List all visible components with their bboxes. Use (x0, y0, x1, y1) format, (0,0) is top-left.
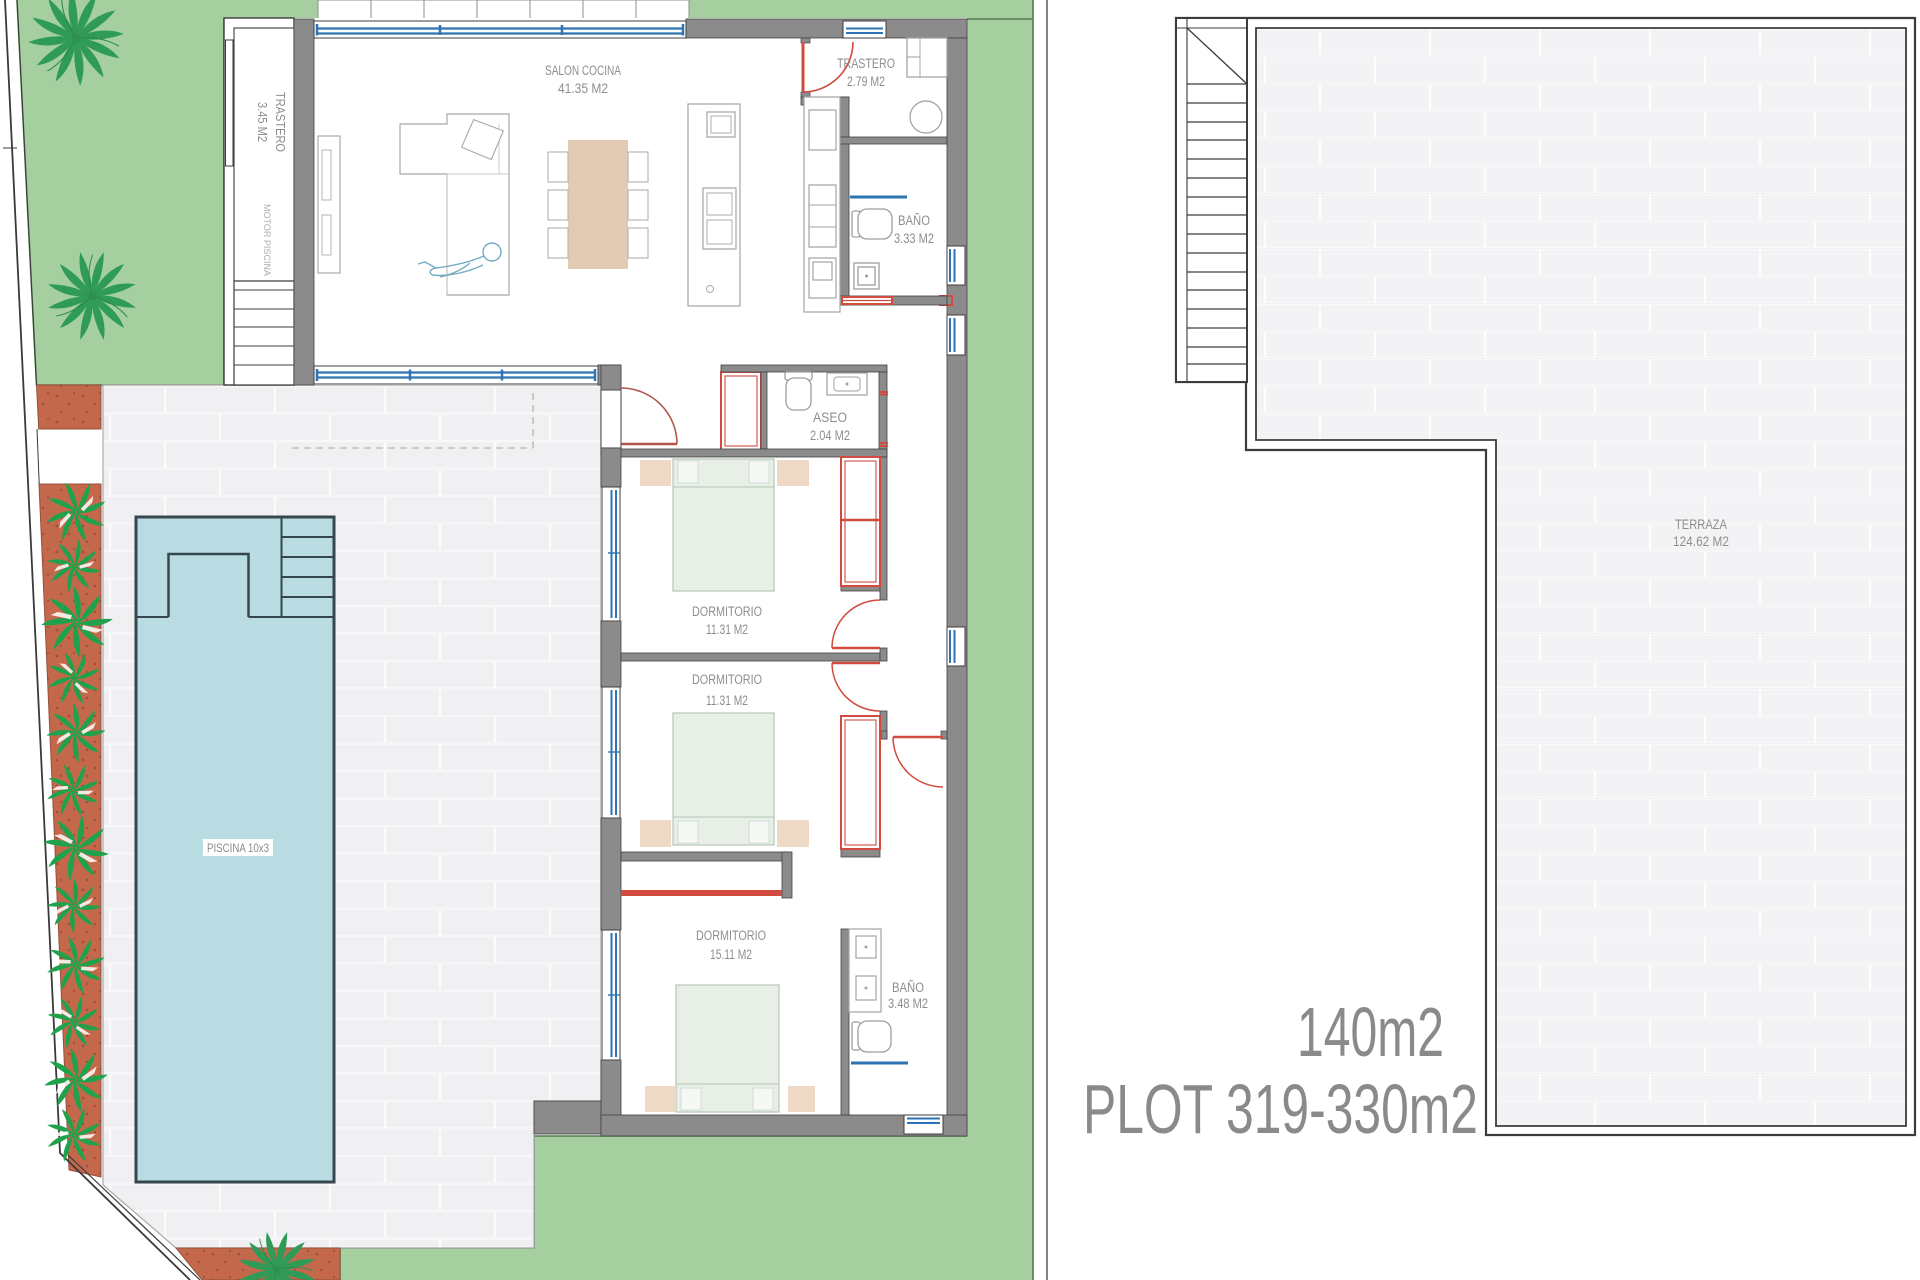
svg-text:3.45 M2: 3.45 M2 (255, 102, 270, 142)
svg-text:PLOT 319-330m2: PLOT 319-330m2 (1083, 1070, 1478, 1148)
svg-text:2.79 M2: 2.79 M2 (847, 74, 885, 89)
svg-text:DORMITORIO: DORMITORIO (692, 604, 762, 619)
svg-text:DORMITORIO: DORMITORIO (696, 928, 766, 943)
svg-text:3.48 M2: 3.48 M2 (888, 996, 928, 1011)
svg-text:MOTOR PISCINA: MOTOR PISCINA (262, 204, 272, 276)
svg-text:TRASTERO: TRASTERO (273, 92, 288, 152)
svg-text:BAÑO: BAÑO (892, 980, 924, 995)
svg-text:BAÑO: BAÑO (898, 213, 930, 228)
svg-text:PISCINA 10x3: PISCINA 10x3 (207, 841, 269, 855)
svg-text:TRASTERO: TRASTERO (837, 56, 895, 71)
svg-text:3.33 M2: 3.33 M2 (894, 231, 934, 246)
svg-text:41.35 M2: 41.35 M2 (558, 81, 608, 96)
svg-text:TERRAZA: TERRAZA (1675, 517, 1727, 532)
svg-text:124.62 M2: 124.62 M2 (1673, 534, 1729, 549)
svg-text:ASEO: ASEO (813, 410, 847, 425)
svg-text:2.04 M2: 2.04 M2 (810, 428, 850, 443)
svg-text:11.31 M2: 11.31 M2 (706, 622, 748, 637)
svg-text:15.11 M2: 15.11 M2 (710, 947, 752, 962)
svg-text:140m2: 140m2 (1297, 993, 1444, 1071)
svg-text:11.31 M2: 11.31 M2 (706, 693, 748, 708)
svg-text:DORMITORIO: DORMITORIO (692, 672, 762, 687)
svg-text:SALON COCINA: SALON COCINA (545, 63, 621, 78)
